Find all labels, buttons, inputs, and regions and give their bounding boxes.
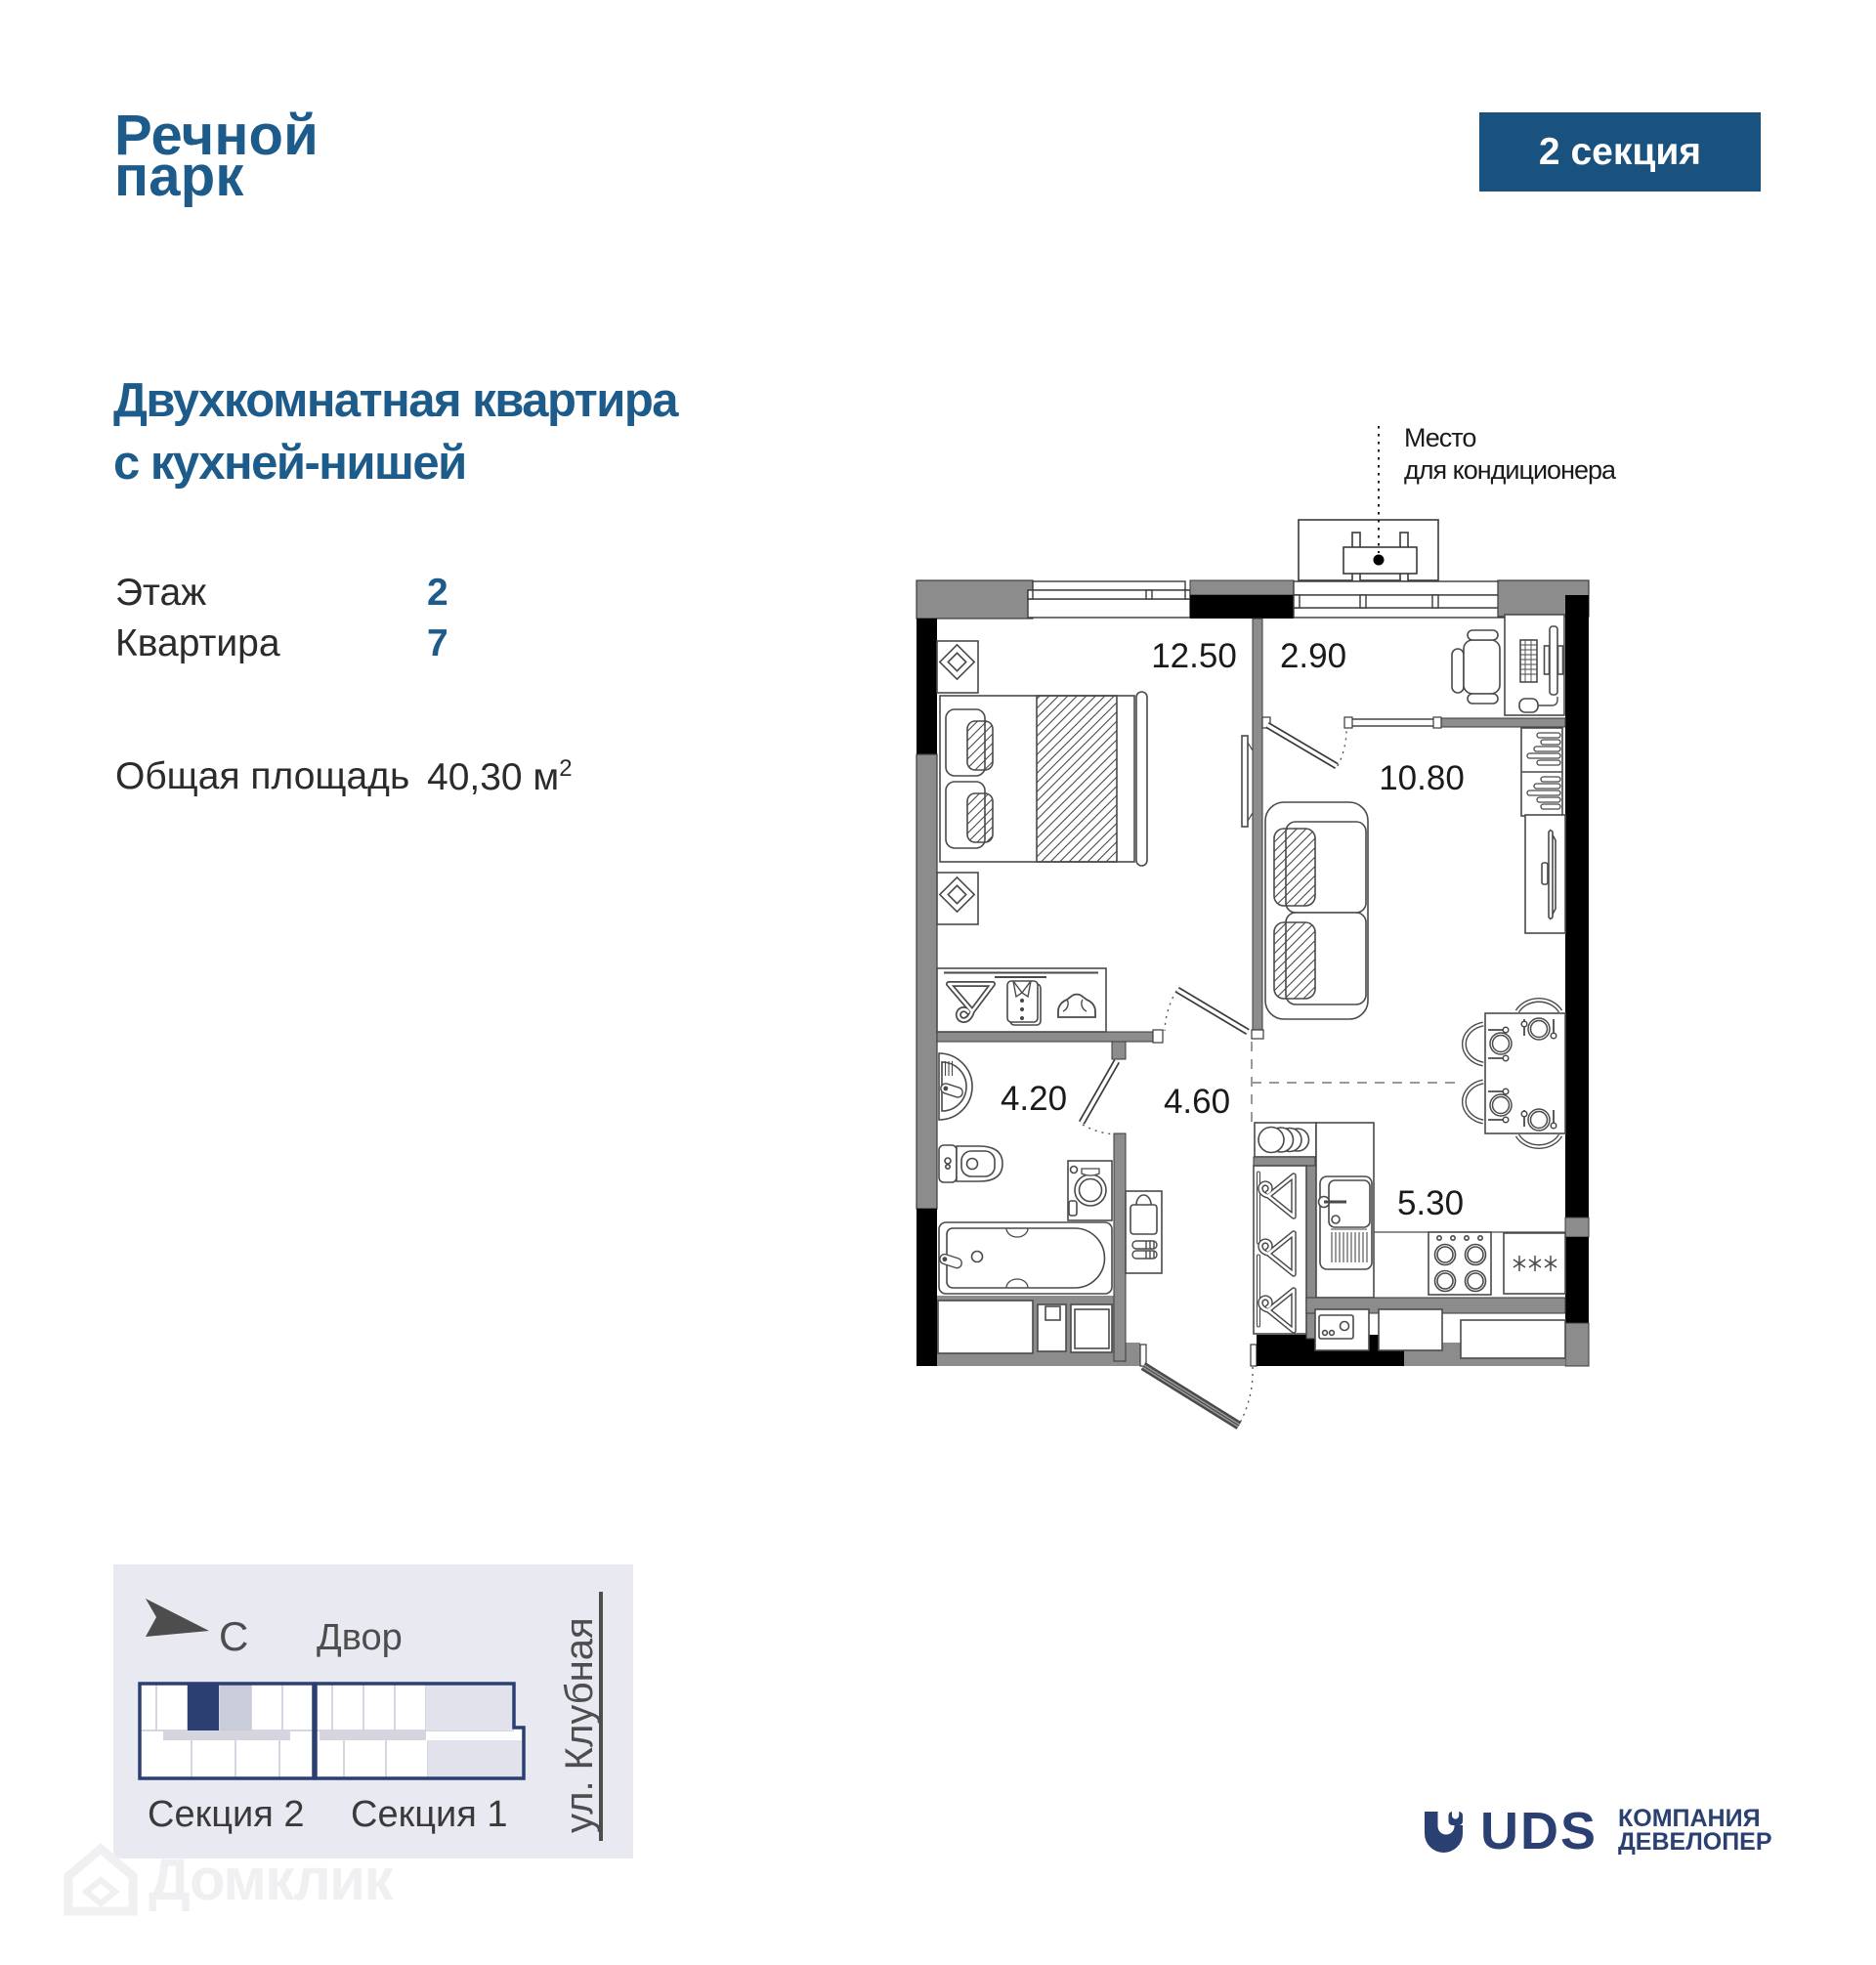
- svg-text:Секция 2: Секция 2: [148, 1794, 304, 1835]
- svg-text:4.60: 4.60: [1164, 1083, 1230, 1121]
- svg-text:ДЕВЕЛОПЕР: ДЕВЕЛОПЕР: [1618, 1828, 1772, 1856]
- svg-text:10.80: 10.80: [1379, 759, 1465, 797]
- svg-text:Секция 1: Секция 1: [351, 1794, 507, 1835]
- svg-text:5.30: 5.30: [1397, 1184, 1464, 1222]
- svg-text:2.90: 2.90: [1280, 637, 1346, 675]
- svg-text:Домклик: Домклик: [149, 1847, 394, 1912]
- svg-text:С: С: [219, 1613, 248, 1659]
- svg-text:Двор: Двор: [317, 1617, 403, 1658]
- svg-text:12.50: 12.50: [1151, 637, 1237, 675]
- svg-text:Место: Место: [1404, 423, 1475, 452]
- svg-text:ул. Клубная: ул. Клубная: [558, 1617, 601, 1833]
- svg-text:для кондиционера: для кондиционера: [1404, 455, 1617, 485]
- svg-text:UDS: UDS: [1480, 1802, 1598, 1860]
- svg-text:4.20: 4.20: [1001, 1080, 1067, 1118]
